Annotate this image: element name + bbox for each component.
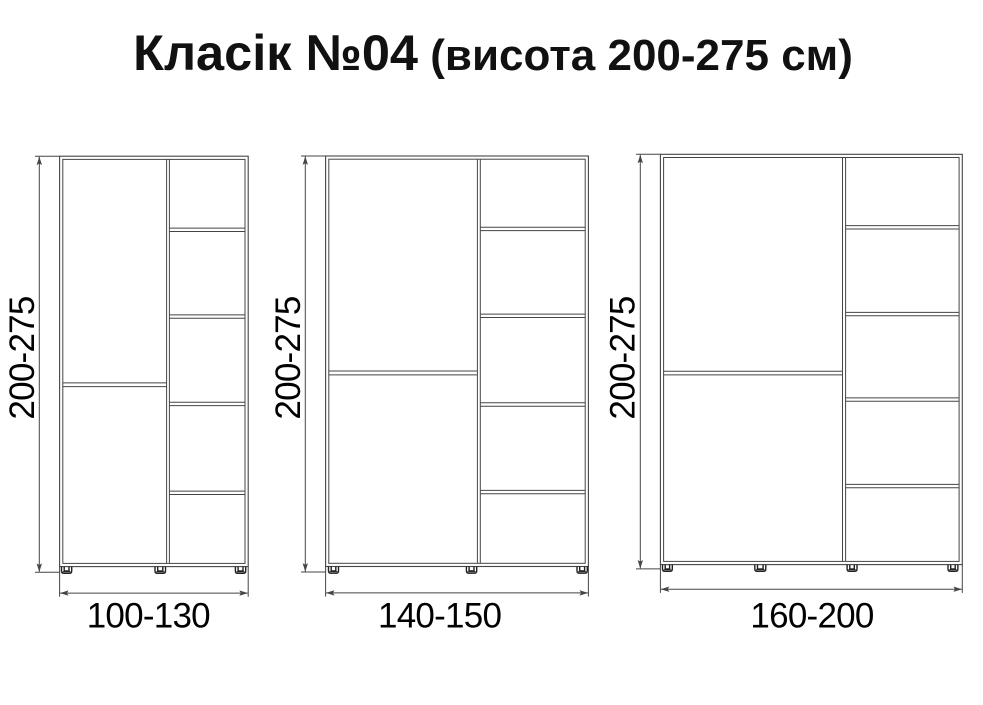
svg-text:200-275: 200-275 (3, 296, 42, 419)
svg-text:140-150: 140-150 (378, 597, 501, 636)
svg-text:160-200: 160-200 (750, 597, 873, 636)
svg-text:Класік №04 (висота 200-275 см): Класік №04 (висота 200-275 см) (133, 24, 853, 81)
svg-text:200-275: 200-275 (603, 296, 642, 419)
svg-text:200-275: 200-275 (269, 296, 308, 419)
svg-text:100-130: 100-130 (87, 597, 210, 636)
